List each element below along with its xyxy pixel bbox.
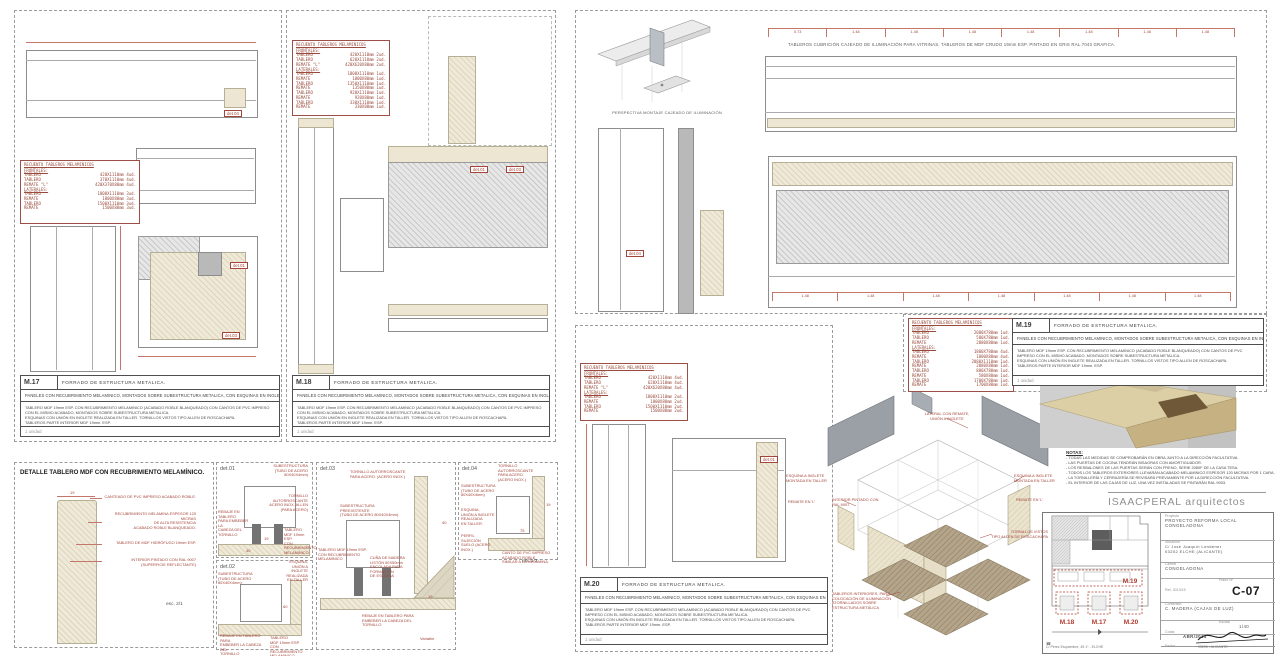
mblock-m20: M.20 FORRADO DE ESTRUCTURA METALICA. PAN… <box>580 577 828 645</box>
table-row: REMATE1500X80mm 2ud. <box>584 409 684 414</box>
wood-panel <box>700 210 724 296</box>
m20-body: TABLERO MDF 19mm ESP. CON RECUBRIMIENTO … <box>581 604 827 635</box>
signature <box>1196 626 1268 648</box>
recuento-table-m19: RECUENTO TABLEROS MELAMINICOS FRONTALES:… <box>908 318 1014 392</box>
table-rows: FRONTALES:TABLERO420X1110mm 4ud.TABLERO3… <box>24 169 136 211</box>
steel-tube <box>240 584 282 622</box>
panel-fill <box>298 364 334 374</box>
table-title: RECUENTO TABLEROS MELAMINICOS <box>912 321 1010 326</box>
row-situacion: Situación C/ José Joaquín Londener 03202… <box>1161 538 1275 563</box>
det04-dim-19: 19 <box>546 502 550 507</box>
m19-body: TABLERO MDF 19mm ESP. CON RECUBRIMIENTO … <box>1013 345 1263 376</box>
panel-fill <box>388 304 548 316</box>
iso-label-interior: INTERIOR PINTADO CON RAL.9007 <box>832 498 894 507</box>
body-line: ESQUINAS CON UNIÓN EN INGLETE REALIZADA … <box>585 617 823 622</box>
drawing-line <box>765 66 1235 67</box>
dim-value: 1.48 <box>1165 293 1231 301</box>
dim-row-bottom: 1.481.481.481.481.481.481.48 <box>772 292 1231 301</box>
top-caption: TABLEROS CUBRICIÓN CAJEADO DE ILUMINACIÓ… <box>788 42 1115 47</box>
det03-label-rebaje: REBAJE EN TABLERO PARA EMBEBER LA CABEZA… <box>362 614 426 628</box>
key-plan: M.19 M.18 M.17 M.20 <box>1044 514 1158 640</box>
sub-frame <box>428 16 552 146</box>
mblock-m17: M.17 FORRADO DE ESTRUCTURA METALICA. PAN… <box>20 375 280 437</box>
mblock-m18: M.18 FORRADO DE ESTRUCTURA METALICA. PAN… <box>292 375 550 437</box>
section-drawing <box>30 226 116 372</box>
m20-units: 1 unidad <box>581 635 827 644</box>
dim-row-top: 0.731.481.481.481.481.481.481.48 <box>768 28 1235 37</box>
label-esquina-inglete: ESQUINA A INGLETE MONTADA EN TALLER <box>786 474 830 483</box>
body-line: TABLERO MDF 19mm ESP. CON RECUBRIMIENTO … <box>297 405 545 415</box>
dim-line <box>57 496 95 497</box>
sheet-number: C-07 <box>1232 584 1260 598</box>
drawing-line <box>26 100 256 101</box>
wood-band <box>772 162 1233 186</box>
steel-tube <box>198 252 222 276</box>
dim-value: 1.48 <box>943 29 1001 37</box>
table-row: REMATE1700X80mm 1ud. <box>912 383 1010 388</box>
m18-title: FORRADO DE ESTRUCTURA METALICA. <box>330 376 442 389</box>
dim-value: 1.48 <box>885 29 943 37</box>
hatch-area <box>776 190 1229 264</box>
drawing-line <box>765 112 1235 113</box>
drawing-line <box>26 60 256 61</box>
det01-label-tablero: TABLERO MDF 19mm ESP. CON RECUBRIMIENTO … <box>284 528 310 556</box>
scale-2-1: esc. 2/1 <box>166 602 183 607</box>
table-rows: FRONTALES:TABLERO2080X780mm 1ud.TABLERO5… <box>912 327 1010 388</box>
ref-det03: det.03 <box>506 166 524 173</box>
dim-value: 1.48 <box>1034 293 1099 301</box>
drawing-line <box>92 226 93 370</box>
det02-label-rebaje: REBAJE EN TABLERO PARA EMBEBER LA CABEZA… <box>220 634 268 656</box>
det03-dim-19: 19 <box>428 594 432 599</box>
dim-value: 1.48 <box>1118 29 1176 37</box>
recuento-table-m17: RECUENTO TABLEROS MELAMINICOS FRONTALES:… <box>20 160 140 224</box>
m18-units: 1 unidad <box>293 427 549 436</box>
fecha-label: Fecha <box>1165 644 1175 647</box>
wood-wedge <box>414 556 454 598</box>
m20-subtitle: PANELES CON RECUBRIMIENTO MELAMINICO, MO… <box>581 592 827 604</box>
section-drawing <box>298 118 334 374</box>
det03-dim-40: 40 <box>442 520 446 525</box>
table-row: REMATE330X80mm 1ud. <box>296 105 386 110</box>
panel-mdf-detail <box>14 462 214 648</box>
leader-line <box>70 561 102 562</box>
table-title: RECUENTO TABLEROS MELAMINICOS <box>296 43 386 48</box>
det03-title: det.03 <box>320 466 335 472</box>
det04-label-subestructura: SUBESTRUCTURA (TUBO DE ACERO 80X40X4mm) <box>461 484 495 498</box>
recuento-table-m18: RECUENTO TABLEROS MELAMINICOS FRONTALES:… <box>292 40 390 116</box>
drawing-line <box>136 190 254 191</box>
body-line: TABLEROS PARTE INTERIOR MDF 19mm. ESP. <box>585 622 823 627</box>
mblock-m19: M.19 FORRADO DE ESTRUCTURA METALICA. PAN… <box>1012 318 1264 386</box>
panel-fill <box>298 118 334 128</box>
mdf-board-h <box>320 598 456 610</box>
m19-code: M.19 <box>1013 319 1050 332</box>
drawing-sheet: det.04 RECUENTO TABLEROS MELAMINICOS FRO… <box>0 0 1280 656</box>
label-tablero-mdf: TABLERO DE MDF HIDRÓFUGO 19mm ESP. <box>100 541 196 546</box>
iso-label-esquina: ESQUINA A INGLETE MONTADA EN TALLER <box>1014 474 1066 483</box>
phone-icon: ☎ <box>1046 641 1051 646</box>
footer-address: C/ Pérez Esquembre, 45 1º - ELCHE <box>1046 645 1103 649</box>
keyplan-m20: M.20 <box>1124 619 1139 626</box>
dim-value: 1.48 <box>772 293 837 301</box>
contenido-value: C. MADERA (CAJAS DE LUZ) <box>1165 606 1275 612</box>
notes-list: - TODAS LAS MEDIDAS SE COMPROBARÁN EN OB… <box>1066 455 1268 485</box>
recuento-table-m20: RECUENTO TABLEROS MELAMINICOS FRONTALES:… <box>580 363 688 421</box>
body-line: TABLEROS PARTE INTERIOR MDF 19mm. ESP. <box>25 420 275 425</box>
ref-det01: det.01 <box>760 456 778 463</box>
keyplan-m17: M.17 <box>1092 619 1107 626</box>
m17-code: M.17 <box>21 376 58 389</box>
m20-code: M.20 <box>581 578 618 591</box>
det03-label-tablero: TABLERO MDF 19mm ESP. CON RECUBRIMIENTO … <box>318 548 368 562</box>
elevation-strip <box>388 318 548 332</box>
ref-det04: det.04 <box>626 250 644 257</box>
panel-fill <box>224 88 246 108</box>
dim-value: 1.48 <box>903 293 968 301</box>
body-line: TABLERO MDF 19mm ESP. CON RECUBRIMIENTO … <box>25 405 275 415</box>
mdf-detail-title: DETALLE TABLERO MDF CON RECUBRIMIENTO ME… <box>20 469 204 476</box>
dim-line <box>586 424 587 566</box>
label-interior-ral: INTERIOR PINTADO CON RAL 9007 (SUPERFICI… <box>100 558 196 567</box>
ref-det04: det.04 <box>224 110 242 117</box>
dim-line <box>120 226 121 370</box>
dim-value: 0.73 <box>768 29 826 37</box>
m18-code: M.18 <box>293 376 330 389</box>
steel-column <box>678 128 694 314</box>
escala-label: Escala <box>1219 620 1230 624</box>
det04-label-tornillo: TORNILLO AUTORROSCANTE PARA ACERO (ACERO… <box>498 464 534 482</box>
m20-title: FORRADO DE ESTRUCTURA METALICA. <box>618 578 730 591</box>
screw <box>252 524 261 546</box>
m17-units: 1 unidad <box>21 427 279 436</box>
notes-block: NOTAS: - TODAS LAS MEDIDAS SE COMPROBARÁ… <box>1066 450 1268 485</box>
det02-label-subestructura: SUBESTRUCTURA (TUBO DE ACERO 80X40X4mm) <box>218 572 262 586</box>
dim-value: 1.48 <box>826 29 884 37</box>
det01-label-subestructura: SUBESTRUCTURA (TUBO DE ACERO 80X40X4mm) <box>256 464 308 478</box>
ref-det03: det.03 <box>222 332 240 339</box>
dim-value: 1.48 <box>1059 29 1117 37</box>
det04-dim-75: 75 <box>520 528 524 533</box>
det04-label-canto: CANTO DE PVC IMPRESO ACABADO ROBLE SIMIL… <box>502 551 554 565</box>
panel-fill <box>767 118 1235 128</box>
det03-label-tornillo: TORNILLO AUTORROSCANTE PARA ACERO. (ACER… <box>350 470 406 479</box>
m18-body: TABLERO MDF 19mm ESP. CON RECUBRIMIENTO … <box>293 402 549 427</box>
m18-subtitle: PANELES CON RECUBRIMIENTO MELAMINICO, MO… <box>293 390 549 402</box>
det02-title: det.02 <box>220 564 235 570</box>
dim-19: 19 <box>70 490 74 495</box>
iso-label-remate: REMATE EN 'L' <box>1016 498 1056 503</box>
table-row: REMATE1500X80mm 3ud. <box>24 206 136 211</box>
table-title: RECUENTO TABLEROS MELAMINICOS <box>584 366 684 371</box>
det03-label-subestructura: SUBESTRUCTURA PREEXISTENTE (TUBO DE ACER… <box>340 504 402 518</box>
det02-label-tablero: TABLERO MDF 19mm ESP. CON RECUBRIMIENTO … <box>270 636 306 656</box>
m19-subtitle: PANELES CON RECUBRIMIENTO MELAMINICO, MO… <box>1013 333 1263 345</box>
mdf-board-v <box>532 476 545 540</box>
dim-value: 1.48 <box>1099 293 1164 301</box>
iso-label-tornillos: TORNILLOS VISTOS TIPO ALLEN DE ROSCACHAP… <box>980 530 1048 539</box>
dim-value: 1.48 <box>968 293 1033 301</box>
steel-tube <box>496 496 530 534</box>
drawing-line <box>136 158 254 159</box>
leader-line <box>76 544 102 545</box>
dim-value: 1.48 <box>837 293 902 301</box>
body-line: ESQUINAS CON UNIÓN EN INGLETE REALIZADA … <box>1017 358 1259 363</box>
drawing-line <box>768 276 1235 277</box>
ref-det01: det.01 <box>230 262 248 269</box>
body-line: TABLERO MDF 19mm ESP. CON RECUBRIMIENTO … <box>585 607 823 617</box>
plano-label: Plano Nº <box>1219 578 1233 582</box>
body-line: TABLERO MDF 19mm ESP. CON RECUBRIMIENTO … <box>1017 348 1259 358</box>
screw <box>274 524 283 546</box>
iso-label-tableros: TABLEROS INTERIORES, PARA COLOCACIÓN DE … <box>832 592 904 610</box>
m17-title: FORRADO DE ESTRUCTURA METALICA. <box>58 376 170 389</box>
row-proyecto: Proyecto PROYECTO REFORMA LOCAL CONGELAD… <box>1161 512 1275 541</box>
keyplan-m18: M.18 <box>1060 619 1075 626</box>
ref-value: Ref. 3013/15 <box>1165 588 1186 592</box>
det02-dim-60: 60 <box>283 604 287 609</box>
perspective-sketch <box>592 14 742 106</box>
situacion-value: C/ José Joaquín Londener 03202 ELCHE (AL… <box>1165 544 1275 555</box>
det02-label-esquina: ESQUINA, UNIÓN A INGLETE REALIZADA EN TA… <box>276 560 308 583</box>
det04-label-perfil: PERFIL SUJECIÓN SUELO (ACERO INOX.) <box>461 534 495 552</box>
label-canteado: CANTEADO DE PVC IMPRESO ACABADO ROBLE. <box>100 495 196 500</box>
iso-label-lateral: LATERAL CON REMATE, UNIÓN A INGLETE <box>905 412 989 421</box>
wood-panel <box>448 56 476 144</box>
corner-render-image <box>1040 380 1236 448</box>
table-title: RECUENTO TABLEROS MELAMINICOS <box>24 163 136 168</box>
screw <box>354 568 363 596</box>
section-drawing <box>592 424 646 568</box>
det01-title: det.01 <box>220 466 235 472</box>
firm-name: ISAACPERAL arquitectos <box>1108 496 1245 508</box>
isometric-exploded-view <box>828 388 1048 650</box>
divider <box>1108 492 1266 493</box>
note-item: - EL INTERIOR DE LAS CAJAS DE LUZ, UNA V… <box>1066 480 1268 485</box>
body-line: TABLEROS PARTE INTERIOR MDF 19mm. ESP. <box>1017 363 1259 368</box>
det03-label-cuna: CUÑA DE MADERA LISTÓN 50X50mm ENCOLADA P… <box>370 556 416 579</box>
section-drawing <box>598 128 664 312</box>
elevation-strip <box>136 148 256 204</box>
table-rows: FRONTALES:TABLERO420X1110mm 4ud.TABLERO6… <box>584 372 684 414</box>
body-line: TABLEROS PARTE INTERIOR MDF 19mm. ESP. <box>297 420 545 425</box>
dim-line <box>26 42 256 43</box>
drawing-line <box>56 226 57 370</box>
hatch-area <box>388 162 548 248</box>
det01-dim-40: 40 <box>246 548 250 553</box>
perspective-caption: PERSPECTIVA MONTAJE CAJEADO DE ILUMINACI… <box>592 110 742 115</box>
keyplan-m19: M.19 <box>1123 578 1138 585</box>
det04-label-esquina: ESQUINA, UNIÓN A INGLETE REALIZADA EN TA… <box>461 508 495 526</box>
dim-value: 1.48 <box>1176 29 1235 37</box>
drawing-line <box>628 424 629 566</box>
drawing-line <box>314 118 315 372</box>
drawing-line <box>620 128 621 310</box>
dim-line <box>138 356 256 357</box>
det01-label-tornillo: TORNILLO AUTORROSCANTE ACERO INOX. ALLEN… <box>268 494 308 512</box>
det01-label-rebaje: REBAJE EN TABLERO PARA EMBEBER LA CABEZA… <box>218 510 252 538</box>
drawing-line <box>765 78 1235 79</box>
drawing-line <box>608 424 609 566</box>
dim-value: 1.48 <box>1001 29 1059 37</box>
label-remate-l: REMATE EN 'L' <box>788 500 828 505</box>
proyecto-value: PROYECTO REFORMA LOCAL CONGELADONA <box>1165 518 1275 530</box>
det04-title: det.04 <box>462 466 477 472</box>
table-rows: FRONTALES:TABLERO420X1110mm 2ud.TABLERO6… <box>296 49 386 110</box>
section-drawing <box>340 198 384 272</box>
cliente-value: CONGELADONA <box>1165 566 1275 572</box>
m17-body: TABLERO MDF 19mm ESP. CON RECUBRIMIENTO … <box>21 402 279 427</box>
ref-det01: det.01 <box>470 166 488 173</box>
det03-dim-variable: Variable <box>420 636 434 641</box>
m19-units: 1 unidad <box>1013 376 1263 385</box>
m19-title: FORRADO DE ESTRUCTURA METALICA. <box>1050 319 1162 332</box>
m17-subtitle: PANELES CON RECUBRIMIENTO MELAMINICO, MO… <box>21 390 279 402</box>
det01-dim-19: 19 <box>264 536 268 541</box>
label-recubrimiento: RECUBRIMIENTO MELAMINA ESPESOR 120 MICRA… <box>100 512 196 530</box>
